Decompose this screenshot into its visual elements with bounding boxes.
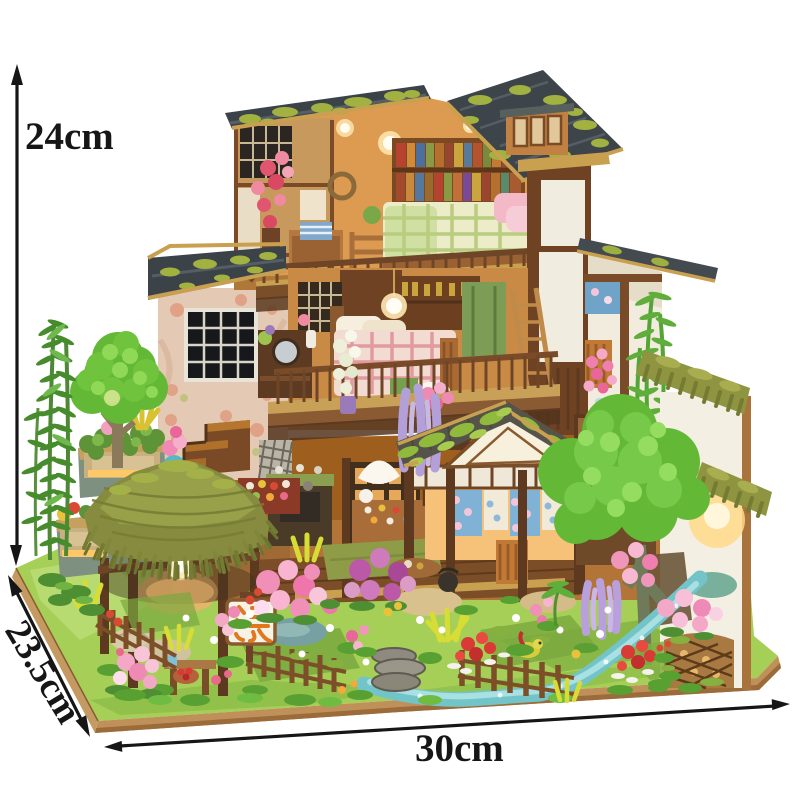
svg-text:24cm: 24cm [25, 115, 114, 158]
svg-text:30cm: 30cm [415, 727, 504, 770]
